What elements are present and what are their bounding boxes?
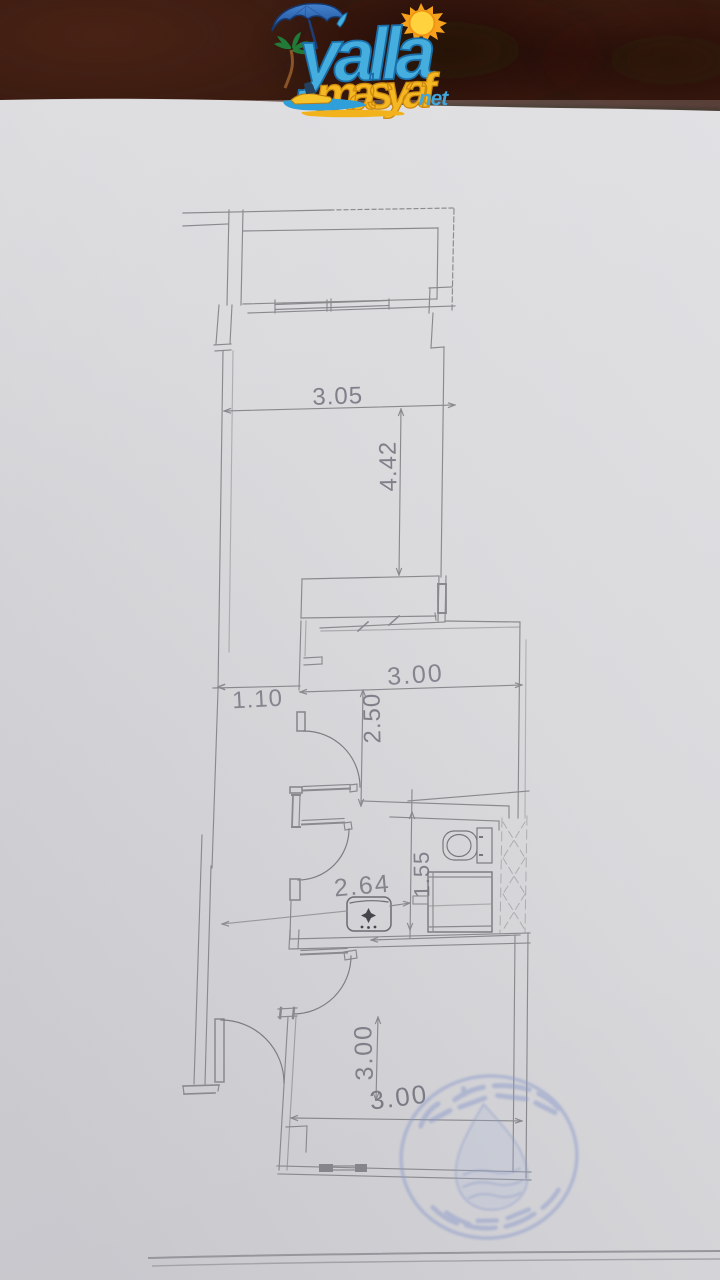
svg-text:net: net (419, 87, 450, 110)
svg-text:3.00: 3.00 (349, 1023, 379, 1081)
svg-text:2.64: 2.64 (333, 870, 392, 903)
svg-text:4.42: 4.42 (375, 441, 403, 492)
svg-text:2.50: 2.50 (359, 693, 387, 744)
svg-text:3.00: 3.00 (386, 659, 444, 691)
svg-text:1.55: 1.55 (409, 851, 435, 898)
svg-text:3.05: 3.05 (312, 382, 364, 411)
svg-text:1.10: 1.10 (232, 685, 284, 715)
